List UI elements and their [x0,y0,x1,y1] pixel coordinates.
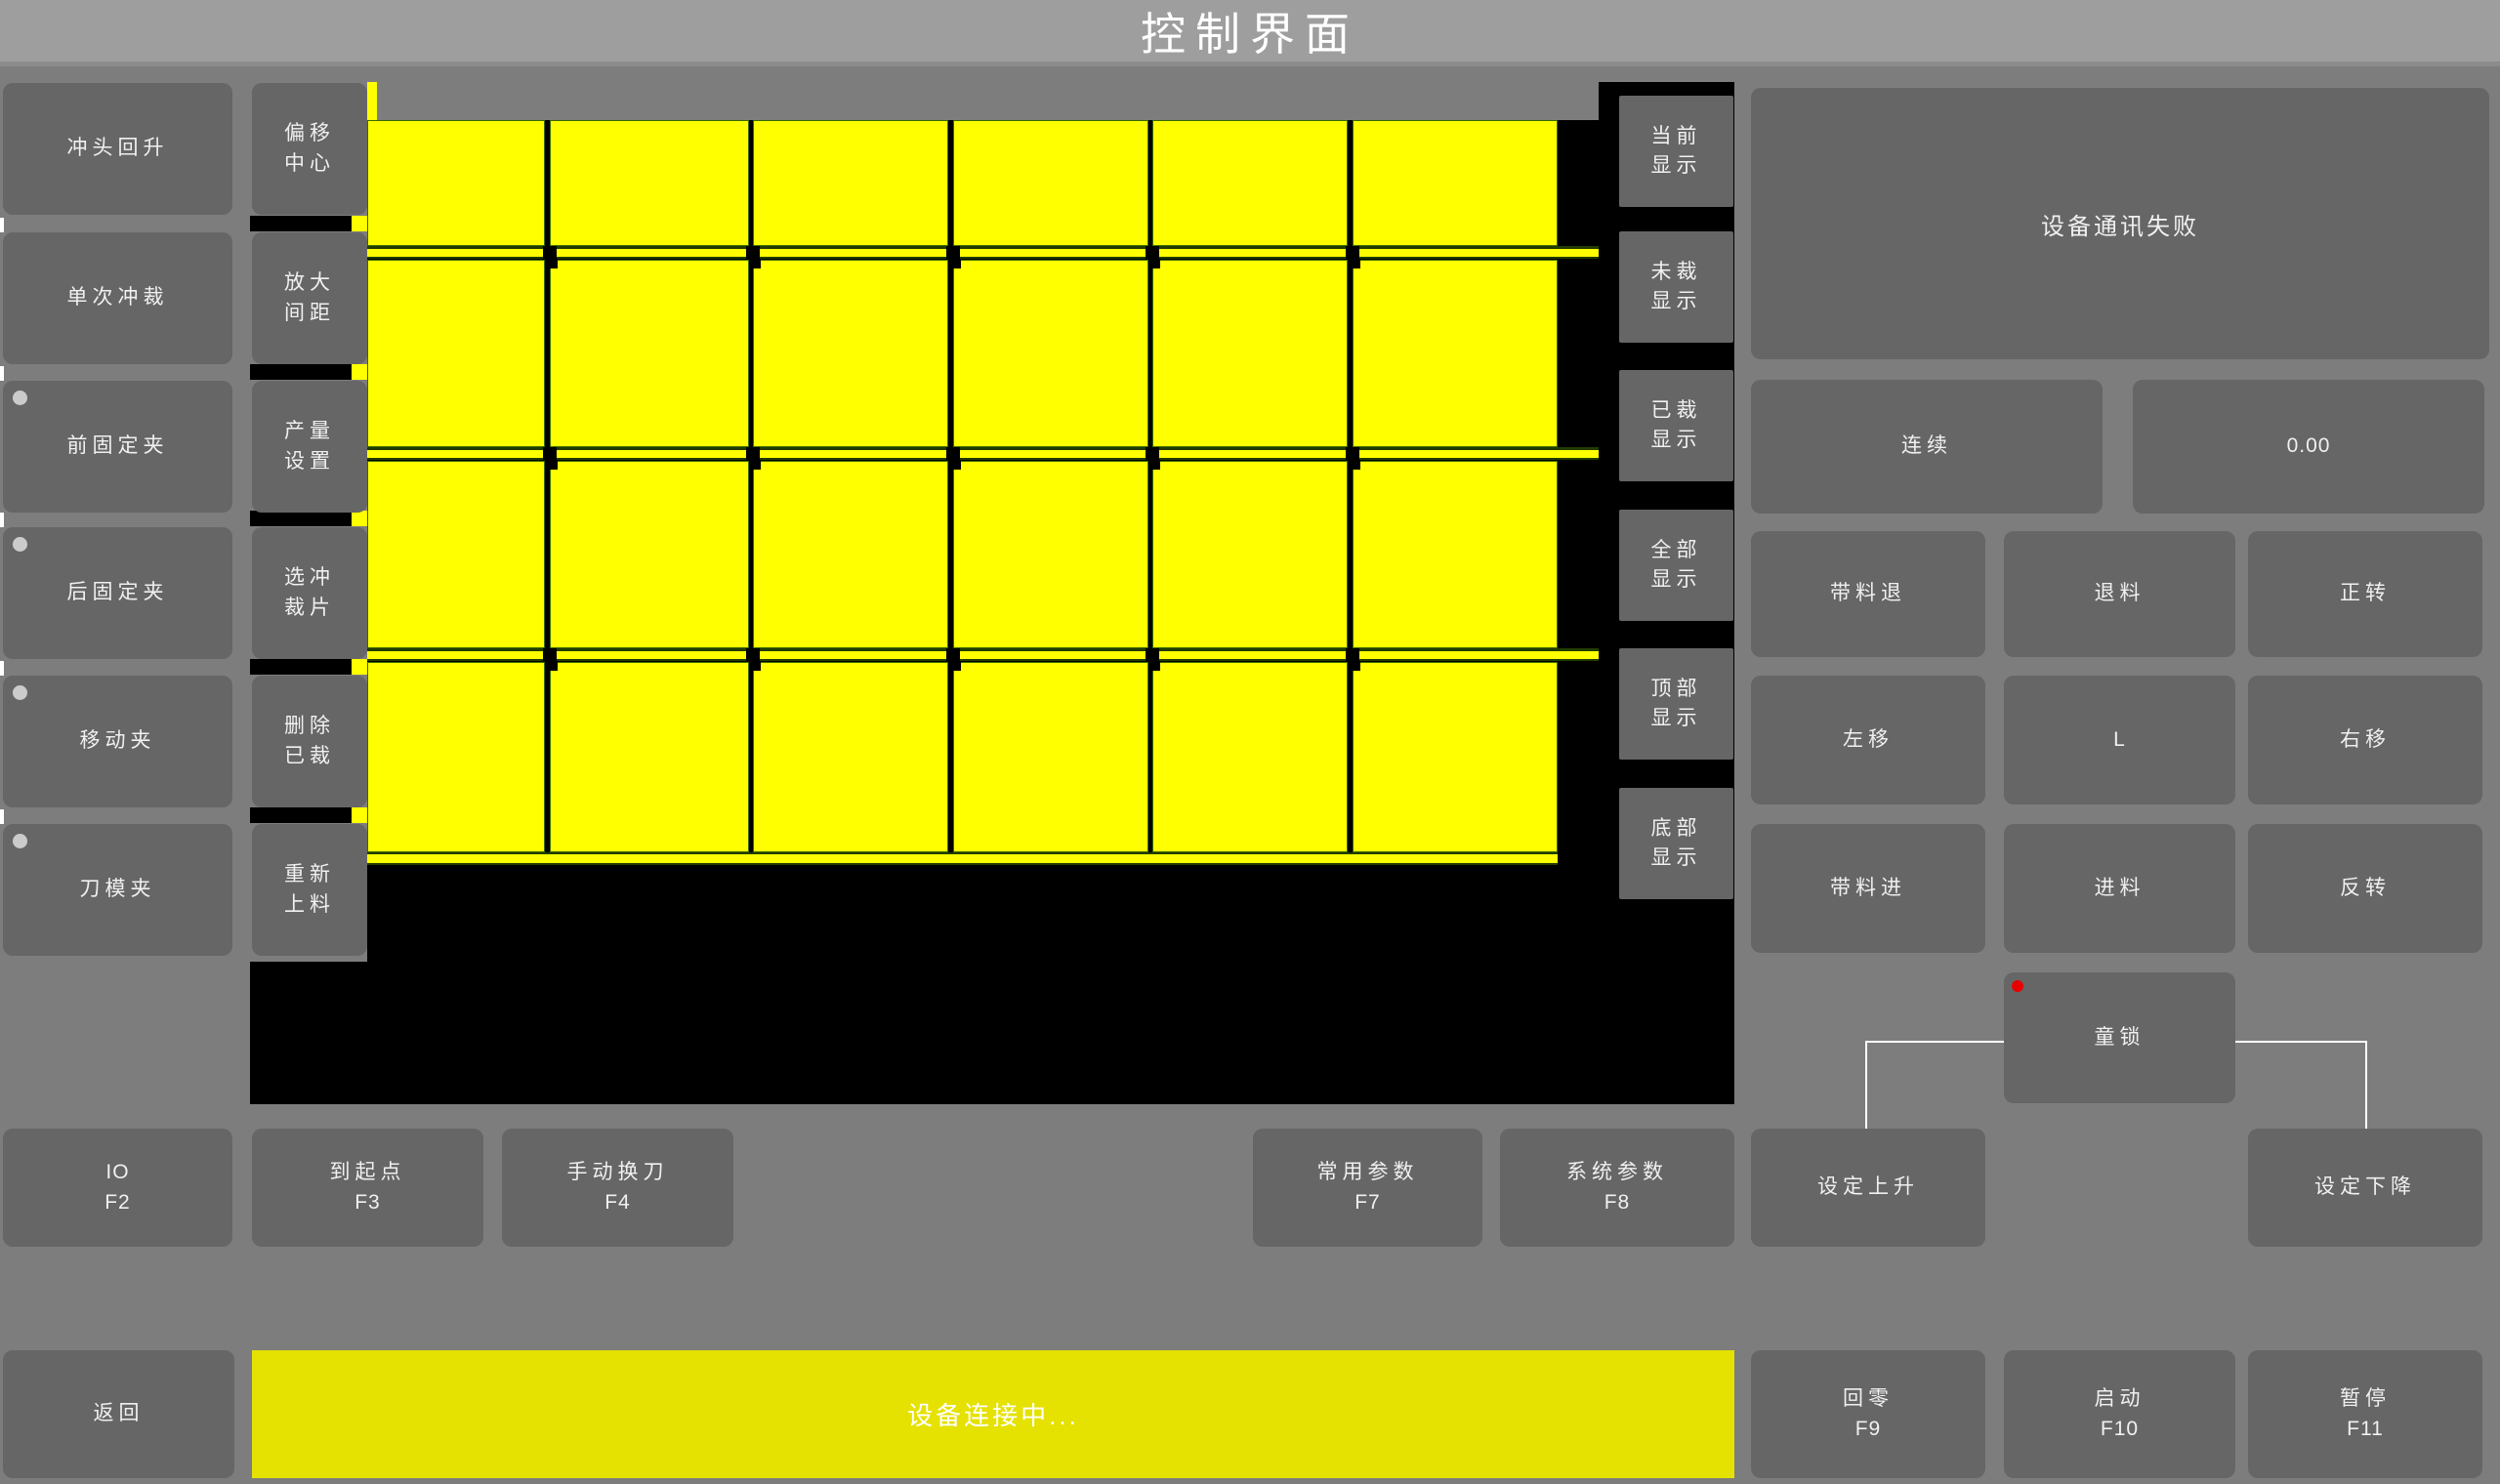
value-display[interactable]: 0.00 [2133,380,2484,514]
button-label: 退料 [2095,579,2146,608]
unload-material-button[interactable]: 退料 [2004,531,2235,657]
button-label: L [2113,725,2126,755]
cut-mark [746,447,760,461]
button-label: 常用参数 [1317,1158,1419,1187]
button-label: 回零 [1843,1384,1894,1414]
button-label: 显示 [1651,426,1702,455]
button-label: 左移 [1843,725,1894,755]
cut-mark [1149,461,1160,470]
show-cut-button[interactable]: 已裁 显示 [1619,370,1733,481]
cut-mark [1146,648,1159,662]
button-label: 重新 [284,860,335,889]
sheet-piece[interactable] [550,662,749,852]
sheet-piece[interactable] [1353,662,1558,852]
gap-strip [250,216,352,231]
forward-rotate-button[interactable]: 正转 [2248,531,2482,657]
cut-mark [547,662,558,671]
cut-mark [1350,662,1360,671]
button-label: 间距 [284,299,335,328]
front-fixed-clamp-button[interactable]: 前固定夹 [3,381,232,513]
reverse-rotate-button[interactable]: 反转 [2248,824,2482,953]
sheet-piece[interactable] [953,260,1148,447]
alert-dot-icon [2012,980,2023,992]
sheet-piece[interactable] [367,260,545,447]
select-piece-button[interactable]: 选冲 裁片 [252,527,367,659]
cut-mark [1146,246,1159,260]
cut-mark [746,648,760,662]
button-key: F10 [2101,1415,2139,1444]
cut-mark [1346,648,1359,662]
edge-tick [0,366,4,381]
back-button[interactable]: 返回 [3,1350,234,1478]
cut-mark [1149,662,1160,671]
cut-mark [946,648,960,662]
set-rise-button[interactable]: 设定上升 [1751,1129,1985,1247]
cut-mark [1146,447,1159,461]
button-label: 底部 [1651,814,1702,844]
enlarge-spacing-button[interactable]: 放大 间距 [252,232,367,364]
button-label: 显示 [1651,565,1702,595]
sheet-piece[interactable] [753,461,948,648]
sheet-bottom-strip [367,854,1558,863]
reload-material-button[interactable]: 重新 上料 [252,824,367,956]
button-label: 裁片 [284,594,335,623]
connection-status-bar: 设备连接中... [252,1350,1734,1478]
continuous-mode-button[interactable]: 连续 [1751,380,2103,514]
page-title: 控制界面 [1141,0,1359,63]
button-key: F9 [1855,1415,1882,1444]
comm-status-panel: 设备通讯失败 [1751,88,2489,359]
button-label: 顶部 [1651,675,1702,704]
button-label: 暂停 [2340,1384,2391,1414]
cut-mark [543,648,557,662]
button-key: F7 [1354,1188,1381,1217]
feed-back-with-material-button[interactable]: 带料退 [1751,531,1985,657]
cut-mark [547,461,558,470]
button-label: 带料退 [1830,579,1906,608]
button-label: 上料 [284,890,335,920]
single-punch-button[interactable]: 单次冲裁 [3,232,232,364]
sheet-top-margin [367,82,1599,120]
button-label: 显示 [1651,287,1702,316]
sheet-piece[interactable] [1353,260,1558,447]
sheet-piece[interactable] [753,662,948,852]
sheet-piece[interactable] [1152,260,1348,447]
edge-tick [0,661,4,676]
sheet-piece[interactable] [550,461,749,648]
show-current-button[interactable]: 当前 显示 [1619,96,1733,207]
edge-tick [0,218,4,232]
cut-mark [750,662,761,671]
cut-mark [750,260,761,268]
button-label: 童锁 [2095,1023,2146,1052]
yield-settings-button[interactable]: 产量 设置 [252,381,367,513]
sheet-piece[interactable] [753,120,948,246]
button-label: 冲头回升 [67,134,169,163]
cut-mark [750,461,761,470]
gap-strip [250,364,352,380]
sheet-piece[interactable] [1152,461,1348,648]
feed-in-with-material-button[interactable]: 带料进 [1751,824,1985,953]
button-label: 产量 [284,417,335,446]
sheet-piece[interactable] [367,461,545,648]
sheet-edge-notch [367,82,377,120]
manual-tool-change-f4-button[interactable]: 手动换刀 F4 [502,1129,733,1247]
connection-status-text: 设备连接中... [907,1396,1079,1432]
sheet-piece[interactable] [367,120,545,246]
gap-strip [250,659,352,675]
button-label: 单次冲裁 [67,283,169,312]
show-bottom-button[interactable]: 底部 显示 [1619,788,1733,899]
button-label: 全部 [1651,536,1702,565]
button-label: 正转 [2340,579,2391,608]
cut-mark [1346,447,1359,461]
button-label: 设定上升 [1817,1173,1919,1202]
button-label: 已裁 [1651,396,1702,426]
edge-tick [0,809,4,824]
move-left-button[interactable]: 左移 [1751,676,1985,804]
button-label: 显示 [1651,844,1702,873]
button-label: 进料 [2095,874,2146,903]
sheet-piece[interactable] [953,120,1148,246]
show-all-button[interactable]: 全部 显示 [1619,510,1733,621]
move-right-button[interactable]: 右移 [2248,676,2482,804]
start-f10-button[interactable]: 启动 F10 [2004,1350,2235,1478]
button-label: 设置 [284,447,335,476]
cut-mark [1350,260,1360,268]
cut-mark [543,447,557,461]
button-label: 已裁 [284,742,335,771]
button-label: 前固定夹 [67,432,169,461]
sheet-piece[interactable] [367,662,545,852]
offset-center-button[interactable]: 偏移 中心 [252,83,367,215]
button-label: 连续 [1901,432,1952,461]
die-clamp-button[interactable]: 刀模夹 [3,824,232,956]
button-key: F3 [354,1188,381,1217]
button-label: 删除 [284,712,335,741]
sheet-bottom-line [367,863,1558,865]
show-top-button[interactable]: 顶部 显示 [1619,648,1733,760]
cut-mark [950,260,961,268]
button-label: 偏移 [284,119,335,148]
sheet-piece[interactable] [1152,662,1348,852]
value-text: 0.00 [2287,432,2331,461]
cut-mark [946,246,960,260]
common-params-f7-button[interactable]: 常用参数 F7 [1253,1129,1482,1247]
button-label: 移动夹 [80,726,156,756]
button-label: 到起点 [330,1158,406,1187]
set-fall-button[interactable]: 设定下降 [2248,1129,2482,1247]
button-label: 反转 [2340,874,2391,903]
edge-tick [0,513,4,527]
button-label: 右移 [2340,725,2391,755]
button-label: 返回 [94,1399,145,1428]
moving-clamp-button[interactable]: 移动夹 [3,676,232,807]
cut-mark [946,447,960,461]
button-label: 手动换刀 [567,1158,669,1187]
sheet-piece[interactable] [1152,120,1348,246]
cut-mark [1350,461,1360,470]
cut-mark [950,461,961,470]
button-label: 选冲 [284,563,335,593]
feed-material-button[interactable]: 进料 [2004,824,2235,953]
gap-strip-yellow [352,807,367,823]
child-lock-button[interactable]: 童锁 [2004,972,2235,1103]
indicator-dot-icon [13,537,27,552]
button-label: 未裁 [1651,258,1702,287]
sheet-piece[interactable] [1353,461,1558,648]
cut-mark [547,260,558,268]
gap-strip-yellow [352,659,367,675]
l-button[interactable]: L [2004,676,2235,804]
nesting-canvas-bottom [250,962,1734,1104]
io-f2-button[interactable]: IO F2 [3,1129,232,1247]
button-label: IO [105,1158,129,1187]
sheet-piece[interactable] [953,461,1148,648]
sheet-piece[interactable] [1353,120,1558,246]
cut-mark [543,246,557,260]
button-label: 设定下降 [2314,1173,2416,1202]
button-label: 启动 [2095,1384,2146,1414]
gap-strip-yellow [352,216,367,231]
cut-mark [746,246,760,260]
button-key: F4 [604,1188,631,1217]
button-label: 放大 [284,268,335,298]
cut-mark [1149,260,1160,268]
gap-strip-yellow [352,364,367,380]
button-label: 显示 [1651,151,1702,181]
indicator-dot-icon [13,685,27,700]
control-screen: 控制界面 冲头回升 单次冲裁 前固定夹 后固定夹 移动夹 刀模夹 偏移 [0,0,2500,1484]
home-f9-button[interactable]: 回零 F9 [1751,1350,1985,1478]
button-label: 中心 [284,149,335,179]
gap-strip [250,807,352,823]
gap-strip-yellow [352,511,367,526]
show-uncut-button[interactable]: 未裁 显示 [1619,231,1733,343]
rear-fixed-clamp-button[interactable]: 后固定夹 [3,527,232,659]
title-bar: 控制界面 [0,0,2500,66]
button-label: 带料进 [1830,874,1906,903]
indicator-dot-icon [13,391,27,405]
button-key: F2 [104,1188,131,1217]
button-label: 刀模夹 [80,875,156,904]
nesting-canvas [367,82,1734,1104]
delete-cut-button[interactable]: 删除 已裁 [252,676,367,807]
sheet-piece[interactable] [953,662,1148,852]
gap-strip [250,511,352,526]
button-label: 当前 [1651,122,1702,151]
cut-mark [950,662,961,671]
button-key: F11 [2347,1415,2384,1444]
comm-status-text: 设备通讯失败 [2041,207,2199,241]
sheet-piece[interactable] [550,120,749,246]
indicator-dot-icon [13,834,27,848]
cut-mark [1346,246,1359,260]
system-params-f8-button[interactable]: 系统参数 F8 [1500,1129,1734,1247]
punch-raise-button[interactable]: 冲头回升 [3,83,232,215]
button-label: 显示 [1651,704,1702,733]
pause-f11-button[interactable]: 暂停 F11 [2248,1350,2482,1478]
button-key: F8 [1604,1188,1631,1217]
button-label: 系统参数 [1566,1158,1668,1187]
goto-start-f3-button[interactable]: 到起点 F3 [252,1129,483,1247]
sheet-piece[interactable] [550,260,749,447]
button-label: 后固定夹 [67,578,169,607]
sheet-piece[interactable] [753,260,948,447]
